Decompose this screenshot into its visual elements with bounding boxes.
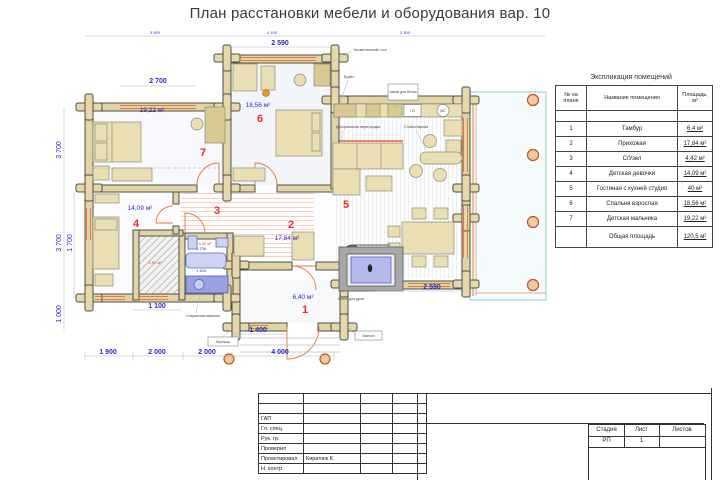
dim-1400: 1 400 xyxy=(249,327,267,334)
designer-name: Кирилюк К. xyxy=(304,454,361,464)
fridge xyxy=(444,120,462,136)
row7-area: 19,22 м² xyxy=(678,212,713,227)
explication-table: Экспликация помещений № на плане Названи… xyxy=(555,74,707,248)
dim-4000: 4 000 xyxy=(271,349,289,356)
dim-2000-b: 2 000 xyxy=(198,349,216,356)
callout-bar: Стойка барная xyxy=(404,125,428,129)
room6-number: 6 xyxy=(257,113,263,125)
role-chief-spec: Гл. спец. xyxy=(259,424,304,434)
explication-row-5: 5 Гостиная с кухней студио 40 м² xyxy=(556,182,713,197)
role-checked: Проверил xyxy=(259,444,304,454)
role-1 xyxy=(259,404,304,414)
callout-buffet: Буфет xyxy=(344,75,355,79)
cosmetic-table xyxy=(314,64,330,86)
dining-table xyxy=(402,222,454,254)
stage-label: Стадия xyxy=(589,427,624,433)
dim-2000-a: 2 000 xyxy=(148,349,166,356)
row5-area: 40 м² xyxy=(678,182,713,197)
sheets-label: Листов xyxy=(659,427,705,433)
bar-counter xyxy=(420,152,462,164)
explication-blank-row xyxy=(556,111,713,122)
room3-number: 3 xyxy=(214,205,220,217)
role-0 xyxy=(259,394,304,404)
dim-2590-bot: 2 590 xyxy=(423,284,441,291)
callout-linen: Шкаф для белья xyxy=(389,90,416,94)
row1-name: Тамбур xyxy=(587,122,678,137)
callout-porch: Крыльцо xyxy=(216,340,230,344)
drawing-sheet: { "sheet": { "title": "План расстановки … xyxy=(0,0,720,480)
titleblock-signatures: ГАП Гл. спец. Рук. гр. Проверил Проектир… xyxy=(258,393,427,474)
row3-num: 3 xyxy=(556,152,587,167)
sink-small xyxy=(216,238,228,247)
room6-area: 18,56 м² xyxy=(246,102,272,109)
room1-area: 6,40 м² xyxy=(292,294,314,301)
explication-row-4: 4 Детская девочки 14,09 м² xyxy=(556,167,713,182)
row4-area: 14,09 м² xyxy=(678,167,713,182)
fireplace xyxy=(339,245,403,291)
explication-row-3: 3 С/Узел 4,42 м² xyxy=(556,152,713,167)
closet-area: 2,97 м² xyxy=(149,260,163,265)
role-group-lead: Рук. гр. xyxy=(259,434,304,444)
dim-2700: 2 700 xyxy=(149,78,167,85)
dim-1700: 1 700 xyxy=(67,234,74,252)
dim-3700-a: 3 700 xyxy=(56,141,63,159)
dim-top-a: 3 500 xyxy=(150,30,161,35)
sink-label: МС xyxy=(440,109,446,113)
callout-partition: Декоративная перегородка xyxy=(336,125,380,129)
callout-mangal: Мангал xyxy=(362,334,374,338)
explication-row-2: 2 Прихожая 17,84 м² xyxy=(556,137,713,152)
titleblock-stage: Стадия Лист Листов РП 1 xyxy=(588,424,706,480)
explication-row-7: 7 Детская мальчика 19,22 м² xyxy=(556,212,713,227)
row4-name: Детская девочки xyxy=(587,167,678,182)
lamp xyxy=(263,90,270,97)
room2-number: 2 xyxy=(288,219,294,231)
total-value: 120,5 м² xyxy=(678,227,713,248)
col-area-header: Площадь, м² xyxy=(678,86,713,111)
row1-num: 1 xyxy=(556,122,587,137)
dim-1900: 1 900 xyxy=(99,349,117,356)
sheet-right-border xyxy=(711,388,712,480)
row5-num: 5 xyxy=(556,182,587,197)
role-norm-control: Н. контр. xyxy=(259,464,304,474)
explication-header: № на плане Название помещения Площадь, м… xyxy=(556,86,713,111)
room4-area: 14,09 м² xyxy=(128,205,154,212)
dim-1000: 1 000 xyxy=(56,305,63,323)
explication-row-6: 6 Спальня взрослая 18,56 м² xyxy=(556,197,713,212)
room2-area: 17,84 м² xyxy=(275,235,301,242)
explication-row-1: 1 Тамбур 6,4 м² xyxy=(556,122,713,137)
room7-area: 19,22 м² xyxy=(140,107,166,114)
explication-title: Экспликация помещений xyxy=(555,74,707,81)
dim-bath-b: 1 400 xyxy=(196,268,207,273)
col-num-header: № на плане xyxy=(556,86,587,111)
dim-top-c: 2 300 xyxy=(400,30,411,35)
total-empty xyxy=(556,227,587,248)
row2-name: Прихожая xyxy=(587,137,678,152)
dim-3700-b: 3 700 xyxy=(56,234,63,252)
row5-name: Гостиная с кухней студио xyxy=(587,182,678,197)
row2-area: 17,84 м² xyxy=(678,137,713,152)
stage-value: РП xyxy=(589,438,624,444)
row3-area: 4,42 м² xyxy=(678,152,713,167)
callout-washer: Стиральная машина xyxy=(186,314,220,318)
explication-total-row: Общая площадь 120,5 м² xyxy=(556,227,713,248)
callout-cosmetic-table: Косметический стол xyxy=(354,48,387,52)
role-gap: ГАП xyxy=(259,414,304,424)
room3-area: 4,42 м² xyxy=(199,241,213,246)
room7-number: 7 xyxy=(200,147,206,159)
dim-1100: 1 100 xyxy=(148,303,166,310)
col-name-header: Название помещения xyxy=(587,86,678,111)
room1-number: 1 xyxy=(302,304,308,316)
room5-number: 5 xyxy=(343,199,349,211)
sheet-label: Лист xyxy=(624,427,659,433)
bathtub xyxy=(186,253,226,268)
row6-name: Спальня взрослая xyxy=(587,197,678,212)
row3-name: С/Узел xyxy=(587,152,678,167)
row7-name: Детская мальчика xyxy=(587,212,678,227)
row1-area: 6,4 м² xyxy=(678,122,713,137)
washing-machine xyxy=(186,276,228,293)
sheet-number: 1 xyxy=(624,438,659,444)
row4-num: 4 xyxy=(556,167,587,182)
dim-bath-a: 1 736 xyxy=(196,246,207,251)
row6-num: 6 xyxy=(556,197,587,212)
room4-number: 4 xyxy=(133,218,140,230)
dim-2590-top: 2 590 xyxy=(271,40,289,47)
row2-num: 2 xyxy=(556,137,587,152)
callout-firewood: Место для дров xyxy=(338,297,364,301)
terrace xyxy=(470,92,546,300)
stove-label: ПЛ xyxy=(410,109,416,113)
role-designed: Проектировал xyxy=(259,454,304,464)
dim-top-b: 4 100 xyxy=(267,30,278,35)
total-label: Общая площадь xyxy=(587,227,678,248)
row7-num: 7 xyxy=(556,212,587,227)
row6-area: 18,56 м² xyxy=(678,197,713,212)
